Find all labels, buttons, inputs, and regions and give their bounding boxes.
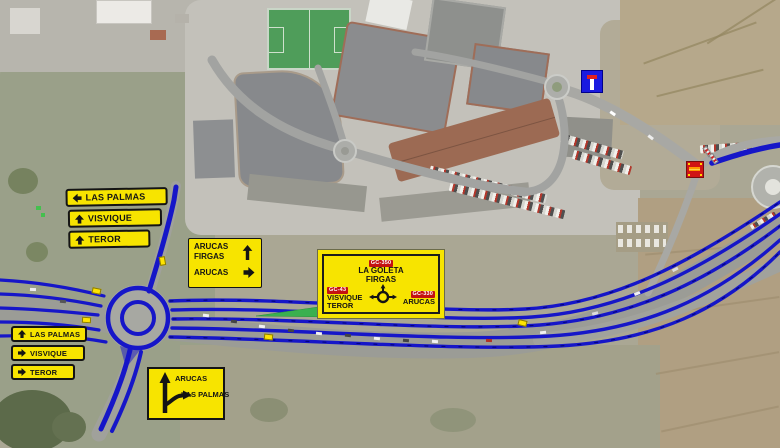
road-tick [159, 256, 166, 266]
sign-panel: VISVIQUE [68, 208, 162, 228]
sign-destination: TEROR [88, 234, 121, 245]
sign-destination: FIRGAS [194, 252, 224, 261]
sign-fork-south: ARUCAS LAS PALMAS [147, 367, 225, 420]
sign-panel: TEROR [11, 364, 75, 380]
up-arrow-icon [18, 330, 26, 338]
sign-destination: LAS PALMAS [181, 390, 229, 399]
right-arrow-icon [18, 349, 26, 357]
sign-stack-west: LAS PALMAS VISVIQUE TEROR [11, 326, 87, 383]
road-tick [82, 317, 91, 324]
sign-stack-northwest: LAS PALMAS VISVIQUE TEROR [65, 187, 168, 252]
sign-destination: FIRGAS [366, 275, 396, 284]
sign-destination: TEROR [30, 368, 57, 377]
sign-destination: ARUCAS [194, 242, 228, 251]
road-closed-sign [686, 161, 704, 178]
up-arrow-icon [75, 214, 84, 223]
dead-end-sign [581, 70, 603, 93]
roundabout-icon [366, 284, 400, 308]
sign-destination: LAS PALMAS [30, 330, 80, 339]
left-arrow-icon [73, 193, 82, 202]
green-marker [36, 206, 41, 210]
sign-destination: LAS PALMAS [86, 192, 146, 203]
up-arrow-icon [242, 245, 253, 260]
green-marker [41, 213, 45, 217]
sign-destination: ARUCAS [403, 297, 435, 306]
sign-panel: LAS PALMAS [11, 326, 87, 342]
sign-panel: LAS PALMAS [65, 187, 167, 207]
up-arrow-icon [75, 235, 84, 244]
sign-destination: TEROR [327, 301, 353, 310]
sign-panel: TEROR [68, 229, 150, 248]
sign-destination: VISVIQUE [30, 349, 67, 358]
right-arrow-icon [18, 368, 26, 376]
road-tick [264, 334, 274, 341]
sign-destination: ARUCAS [175, 374, 207, 383]
right-arrow-icon [244, 266, 255, 280]
sign-panel: VISVIQUE [11, 345, 85, 361]
sign-goleta-roundabout: GC-350 LA GOLETA FIRGAS GC-43 VISVIQUE T… [322, 254, 440, 314]
sign-destination: ARUCAS [194, 268, 228, 278]
sign-approach-arucas-firgas: ARUCAS FIRGAS ARUCAS [188, 238, 262, 288]
aerial-map: LAS PALMAS VISVIQUE TEROR ARUCAS FIRGAS … [0, 0, 780, 448]
sign-destination: VISVIQUE [88, 213, 132, 224]
